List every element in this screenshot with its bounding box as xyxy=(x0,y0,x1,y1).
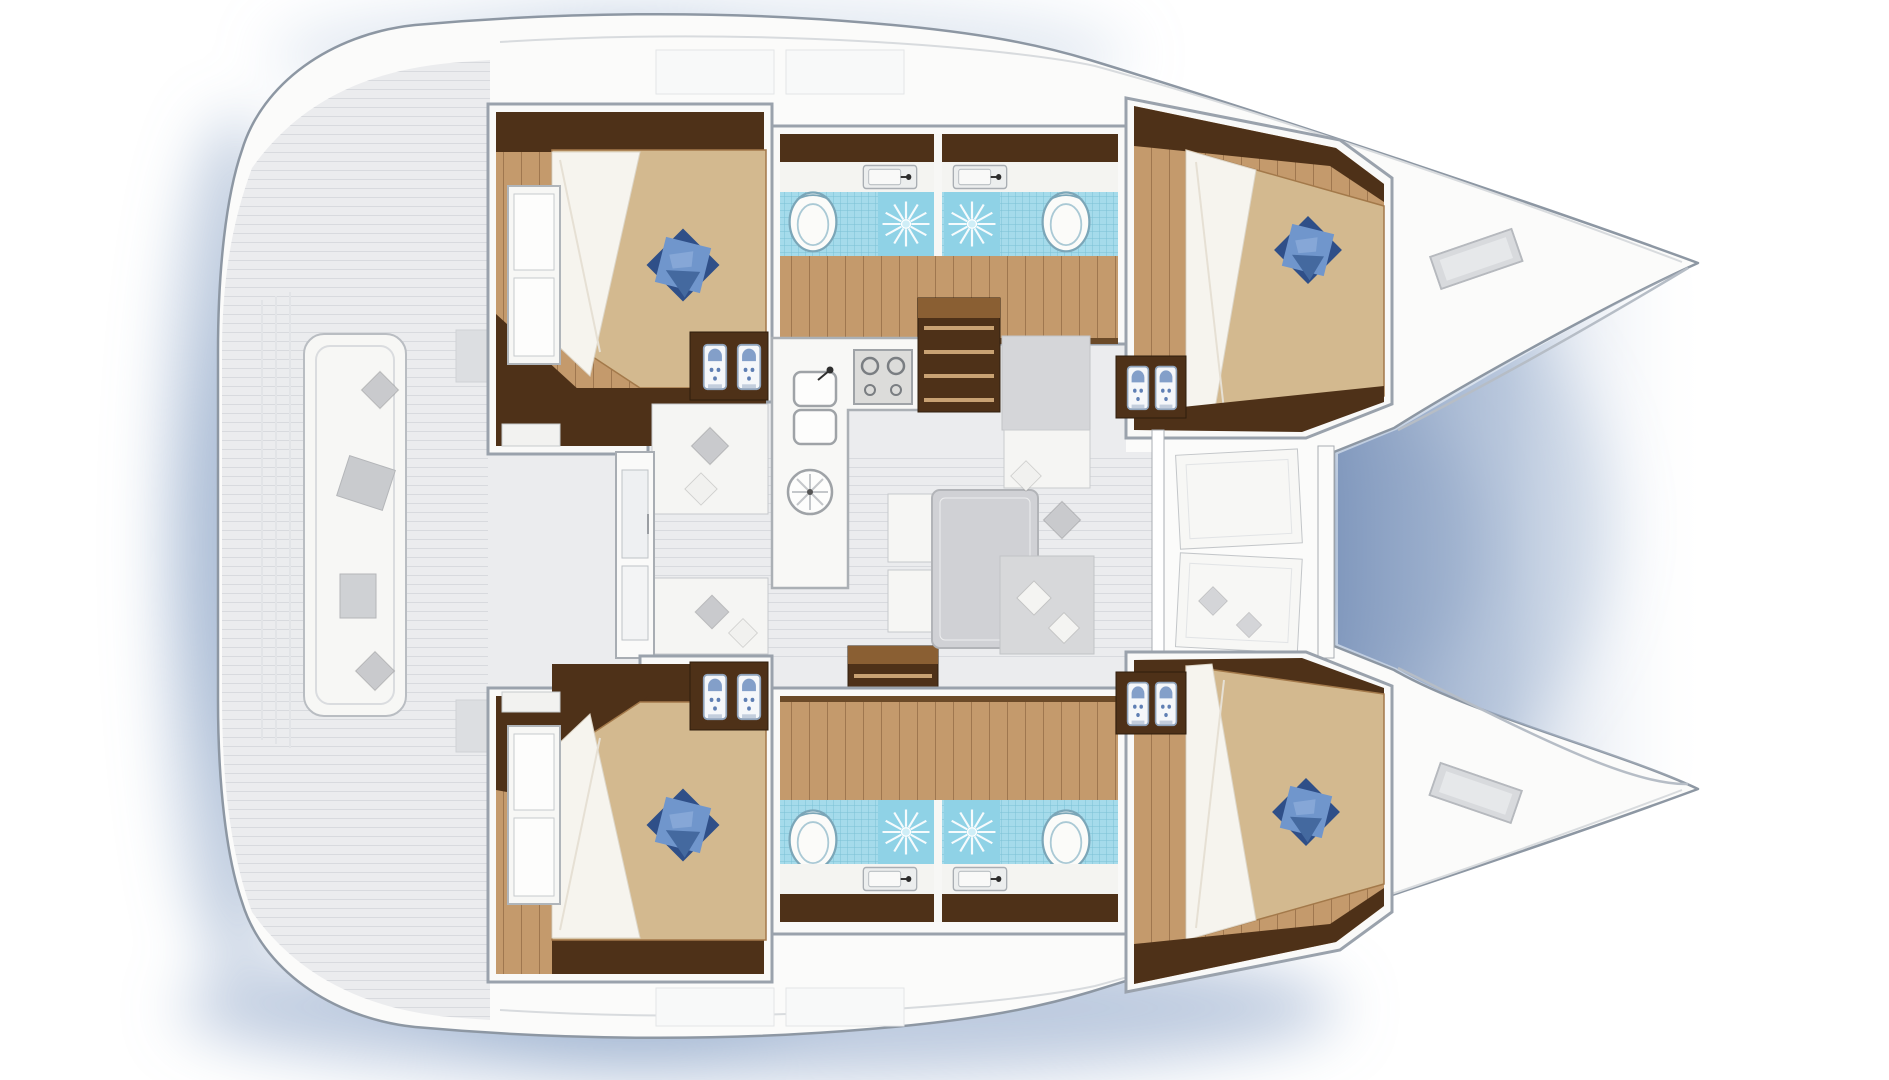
bathroom-divider-wall xyxy=(934,800,942,922)
shower-icon xyxy=(944,192,1000,256)
galley-round-sink-icon xyxy=(788,470,832,514)
hanging-locker-icon xyxy=(1156,683,1177,726)
catamaran-floor-plan xyxy=(0,0,1889,1080)
wardrobe-band xyxy=(496,112,764,152)
deck-panel xyxy=(656,988,774,1026)
forward-bulkhead xyxy=(1152,430,1164,662)
vanity-counter xyxy=(780,864,1118,894)
step-shelf xyxy=(502,424,560,446)
starboard-aft-cabin xyxy=(488,656,772,982)
shower-icon xyxy=(944,800,1000,864)
washbasin-icon xyxy=(863,868,916,891)
corridor-planks xyxy=(780,696,1118,800)
shower-icon xyxy=(878,192,934,256)
port-forward-cabin xyxy=(1116,98,1392,438)
hanging-locker-icon xyxy=(738,675,761,719)
sofa-cushion xyxy=(888,570,932,632)
hanging-locker-icon xyxy=(1128,683,1149,726)
starboard-forward-cabin xyxy=(1116,652,1392,992)
corridor-trim xyxy=(780,696,1118,702)
shower-icon xyxy=(878,800,934,864)
chaise-seat xyxy=(1002,336,1090,430)
shelf xyxy=(514,734,554,810)
stairs-port xyxy=(918,298,1000,412)
shelf xyxy=(514,818,554,896)
step-shelf xyxy=(502,692,560,712)
sliding-door xyxy=(616,452,654,658)
sofa-cushion xyxy=(888,494,932,562)
toilet-icon xyxy=(1043,810,1090,869)
starboard-bathrooms xyxy=(772,688,1126,934)
hanging-locker-icon xyxy=(1156,367,1177,410)
cockpit xyxy=(222,60,504,1020)
washbasin-icon xyxy=(863,166,916,189)
hanging-locker-icon xyxy=(704,345,727,389)
hanging-locker-icon xyxy=(1128,367,1149,410)
shelf xyxy=(514,278,554,356)
galley-double-sink-icon xyxy=(794,367,836,445)
cockpit-cushion xyxy=(340,574,376,618)
deck-panel xyxy=(786,50,904,94)
wardrobe-band xyxy=(780,134,1118,162)
wardrobe-band xyxy=(552,938,764,974)
salon-seat xyxy=(1000,556,1094,654)
shelf xyxy=(514,194,554,270)
deck-panel xyxy=(656,50,774,94)
hanging-locker-icon xyxy=(738,345,761,389)
hanging-locker-icon xyxy=(704,675,727,719)
floor-plan-canvas xyxy=(0,0,1889,1080)
vanity-counter xyxy=(780,162,1118,192)
washbasin-icon xyxy=(953,166,1006,189)
washbasin-icon xyxy=(953,868,1006,891)
crossbeam-wall xyxy=(1318,446,1334,658)
bathroom-divider-wall xyxy=(934,134,942,256)
port-aft-cabin xyxy=(488,104,772,454)
wardrobe-band xyxy=(780,894,1118,922)
toilet-icon xyxy=(1043,192,1090,251)
toilet-icon xyxy=(790,810,837,869)
stove-icon xyxy=(854,350,912,404)
toilet-icon xyxy=(790,192,837,251)
deck-panel xyxy=(786,988,904,1026)
